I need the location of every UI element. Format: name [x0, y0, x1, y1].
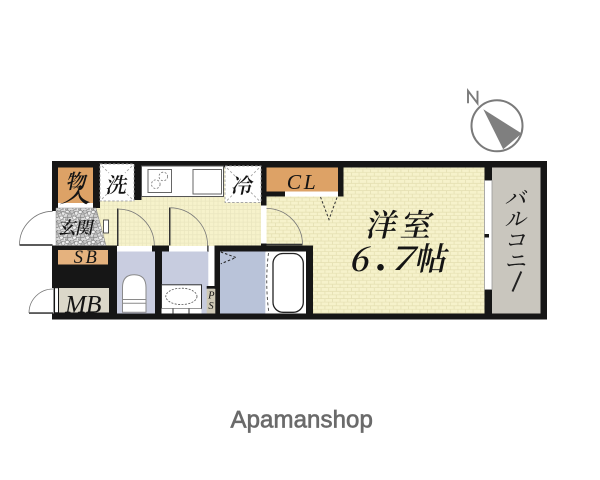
svg-text:P: P — [207, 291, 215, 302]
svg-text:MB: MB — [64, 290, 102, 319]
svg-text:CL: CL — [287, 170, 319, 194]
svg-text:S: S — [208, 301, 214, 312]
svg-text:SB: SB — [74, 248, 100, 268]
svg-text:Apamanshop: Apamanshop — [231, 407, 373, 434]
